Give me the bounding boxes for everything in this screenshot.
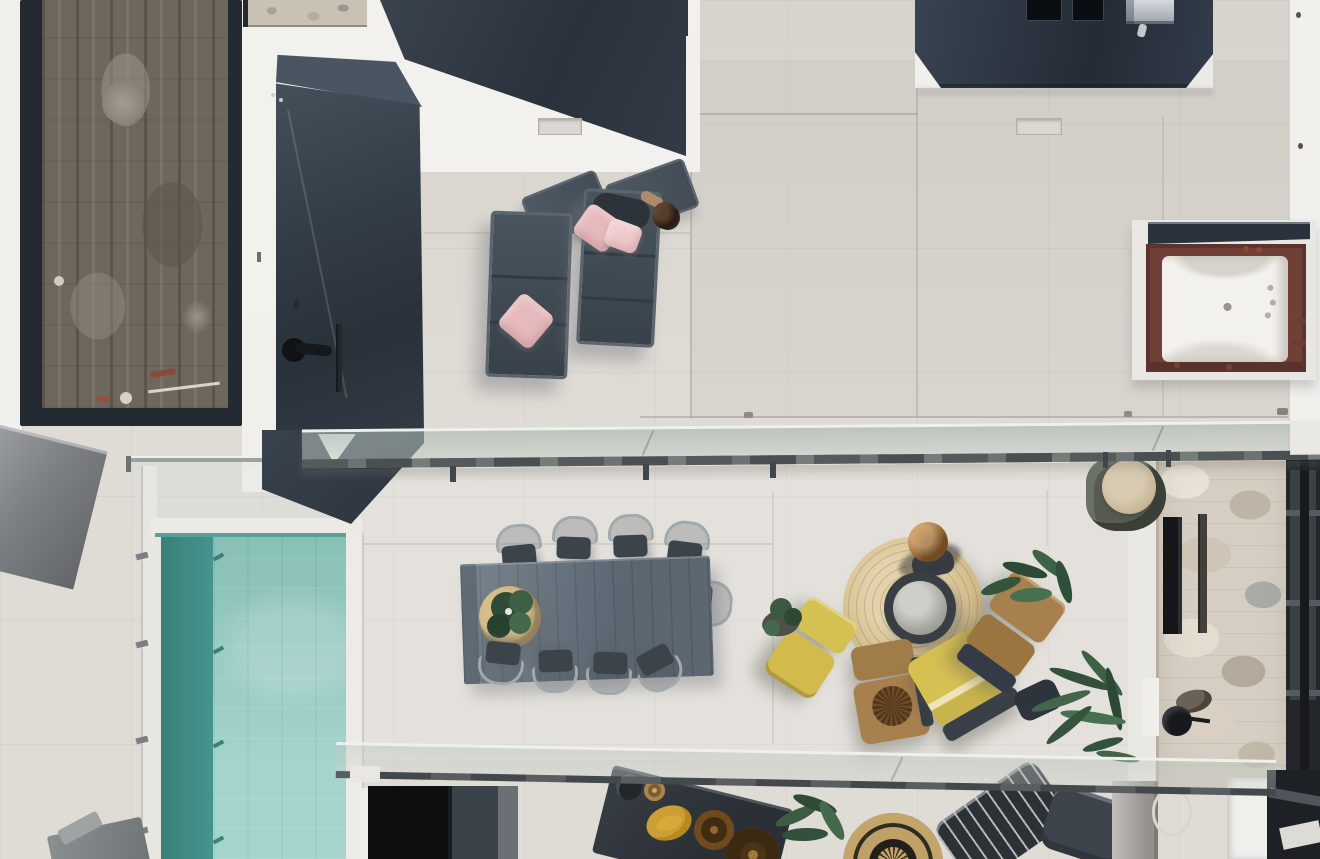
chair-seat xyxy=(556,536,591,559)
gate-lower-bar xyxy=(1269,788,1320,807)
patterned-rug xyxy=(843,813,943,859)
pool-shadow-band xyxy=(161,533,213,859)
glass-seam xyxy=(891,757,904,781)
wall-dot xyxy=(1296,12,1301,18)
plant-leaves xyxy=(784,608,802,626)
jacuzzi-rust-dot xyxy=(1226,364,1232,370)
jacuzzi-rust-dot xyxy=(1243,246,1249,252)
gravel-white-spot xyxy=(120,392,132,404)
frond xyxy=(1053,559,1076,605)
gravel-light-spot xyxy=(102,82,144,124)
wall-dot xyxy=(1298,143,1303,149)
pool-coping-top xyxy=(150,518,362,533)
lounger-crossbar xyxy=(492,274,568,280)
chair-seat xyxy=(485,640,521,665)
canopy-support-post xyxy=(450,466,456,482)
dining-chair xyxy=(531,649,578,694)
paving-speck xyxy=(744,412,753,418)
dining-chair xyxy=(585,651,632,696)
pouf xyxy=(908,522,948,562)
drain-cover xyxy=(1016,118,1062,135)
plant-highlight xyxy=(505,608,512,615)
sun-lounger-1 xyxy=(485,211,573,380)
fireplace-slot xyxy=(1163,517,1182,634)
gate-lower-slab xyxy=(1279,820,1320,850)
gravel-light-spot xyxy=(182,300,212,334)
fireplace-slot-thin xyxy=(1198,514,1207,633)
roof-corner-slab xyxy=(0,425,108,590)
canopy-support-post xyxy=(770,462,776,478)
frond xyxy=(782,827,828,842)
plant-leaves xyxy=(764,620,780,636)
door-slot xyxy=(336,324,342,392)
pool-water xyxy=(213,533,346,859)
plant-leaves xyxy=(509,590,533,614)
jacuzzi-latch xyxy=(1294,318,1306,324)
wall-sconce xyxy=(1162,706,1192,736)
canopy-end-cap-left xyxy=(350,766,380,783)
bright-tile xyxy=(1143,678,1159,736)
paving-joint xyxy=(640,416,1288,418)
gravel-roof xyxy=(42,0,228,408)
white-jamb xyxy=(686,36,700,172)
paving-joint xyxy=(1046,490,1048,546)
roof-vent xyxy=(1126,0,1174,24)
canopy-support-post xyxy=(643,464,649,480)
jacuzzi-latch xyxy=(1292,340,1306,346)
frond xyxy=(1009,586,1052,604)
paving-joint xyxy=(916,86,918,418)
door-panel-dark xyxy=(452,786,498,859)
pool-waterline xyxy=(155,533,346,537)
entrance-wall-face xyxy=(276,80,424,432)
dining-chair xyxy=(607,513,654,558)
paving-speck xyxy=(1277,408,1288,415)
canopy-support-post xyxy=(1166,450,1171,467)
aerial-terrace-photo xyxy=(0,0,1320,859)
canopy-support-post xyxy=(1103,452,1108,468)
paving-joint xyxy=(690,113,918,115)
dining-chair xyxy=(551,515,598,560)
potted-plant-small xyxy=(762,598,812,646)
chair-seat xyxy=(593,651,628,674)
lounger-crossbar xyxy=(584,251,656,258)
door-panel-mid xyxy=(498,786,518,859)
stone-pouf xyxy=(1102,460,1156,514)
glass-seam xyxy=(1152,426,1165,452)
wall-fixture-dot xyxy=(271,93,275,97)
canopy-end-cap xyxy=(1290,421,1320,455)
plant-leaves xyxy=(509,612,531,634)
plant-cluster-top-right xyxy=(980,558,1084,630)
chair-seat xyxy=(613,534,648,557)
wall-fixture-dot xyxy=(279,98,283,102)
person-head xyxy=(652,202,678,229)
jacuzzi-rust-dot xyxy=(1256,247,1262,253)
gate-post xyxy=(1300,455,1309,790)
wall-mark xyxy=(257,252,261,262)
door-jamb xyxy=(358,788,368,859)
lounger-crossbar xyxy=(581,296,653,303)
paving-speck xyxy=(1124,411,1132,417)
railing-post xyxy=(126,456,131,472)
drain-cover xyxy=(538,118,582,135)
jacuzzi-rust-dot xyxy=(1174,362,1180,368)
glass-seam xyxy=(642,430,655,456)
wall-mark xyxy=(294,300,299,309)
skylight-window xyxy=(1027,0,1061,20)
skylight-window xyxy=(1073,0,1103,20)
dining-chair xyxy=(476,640,526,688)
gravel-white-spot xyxy=(54,276,64,286)
plant-leaves xyxy=(487,614,511,638)
coffee-table-top xyxy=(893,581,947,635)
side-gate-upper xyxy=(1286,455,1320,790)
jacuzzi-tub xyxy=(1162,256,1288,362)
doorway xyxy=(368,786,452,859)
table-planter xyxy=(479,586,541,648)
stone-patch xyxy=(243,0,367,27)
chair-seat xyxy=(538,649,573,672)
roof-box-shadow xyxy=(918,88,1213,96)
